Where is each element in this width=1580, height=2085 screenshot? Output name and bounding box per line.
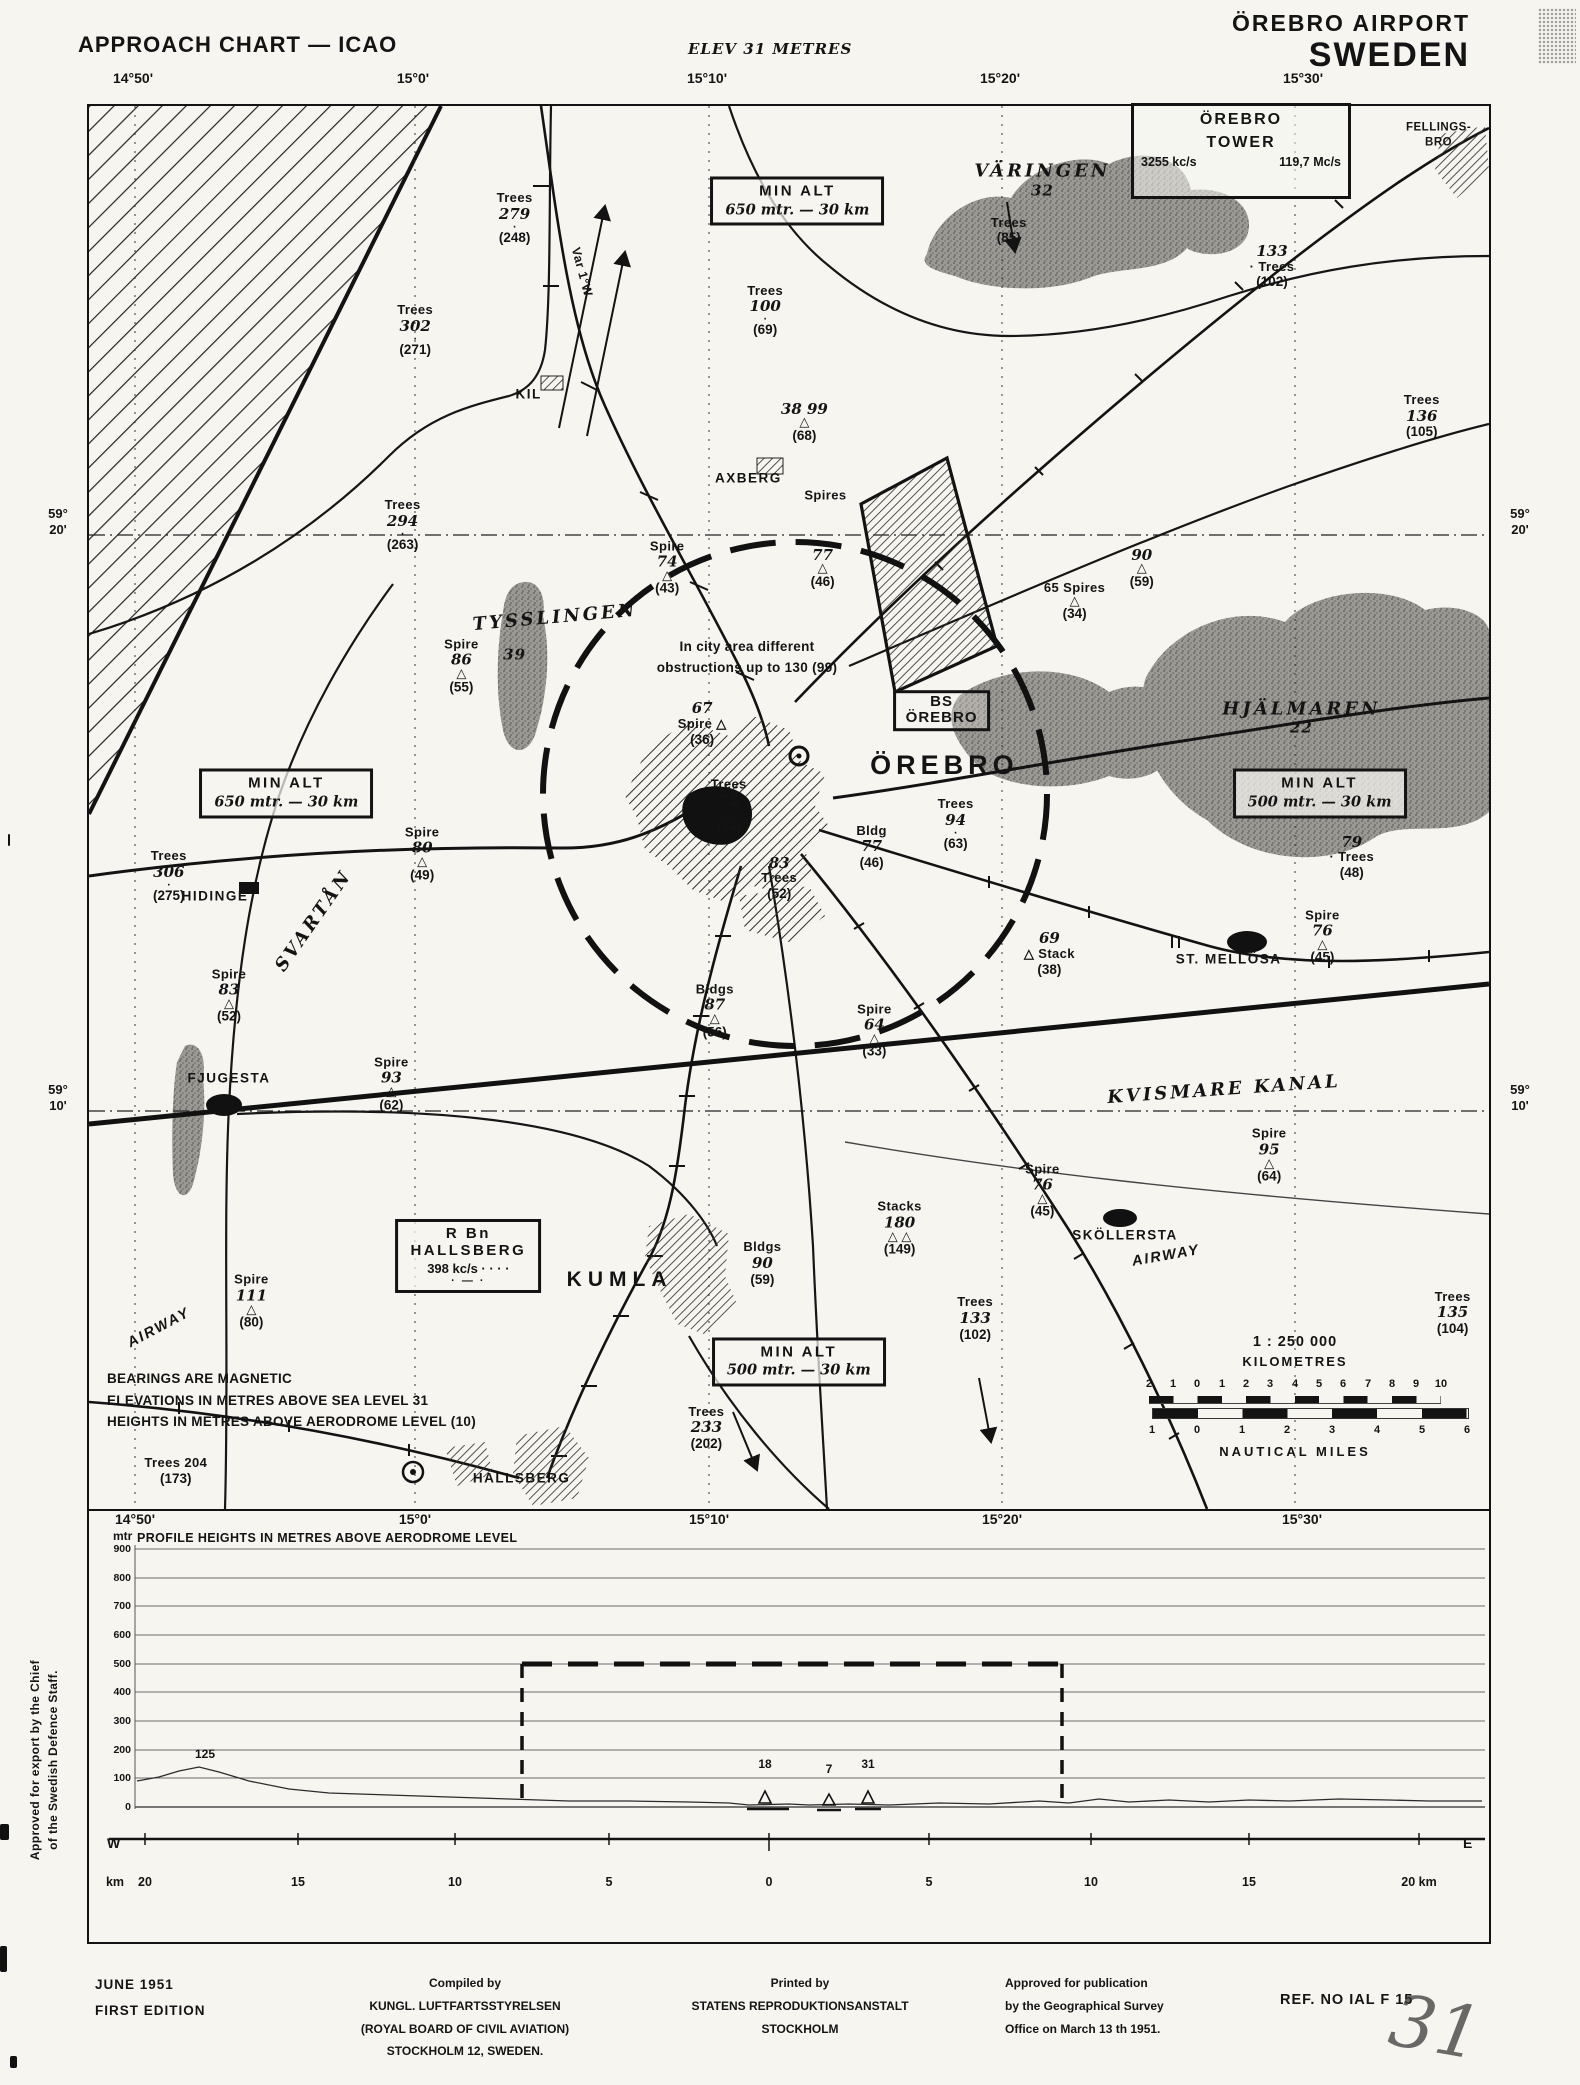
rbn-hallsberg-box-line: · — · bbox=[410, 1277, 526, 1287]
varingen-lake-line: VÄRINGEN bbox=[974, 162, 1110, 182]
nm-tick-label: 3 bbox=[1329, 1424, 1335, 1436]
bs-orebro-box-line: ÖREBRO bbox=[906, 711, 978, 728]
bldg-77-line: (46) bbox=[856, 855, 886, 870]
bldgs-87-line: △ bbox=[696, 1014, 734, 1024]
airway-left: AIRWAY bbox=[125, 1305, 193, 1352]
spire-67-line: Spire △ bbox=[678, 717, 727, 732]
hjalmaren-lake-line: HJÄLMAREN bbox=[1222, 699, 1380, 719]
spire-111-line: (80) bbox=[234, 1315, 269, 1330]
trees-94-line: · bbox=[938, 829, 974, 836]
hidinge-town-line: HIDINGE bbox=[182, 888, 249, 903]
minalt-box-top: MIN ALT650 mtr. — 30 km bbox=[710, 177, 884, 226]
var-declination: Var 1°W bbox=[569, 245, 596, 297]
km-tick-label: 10 bbox=[1435, 1378, 1447, 1390]
tower-name-line1: ÖREBRO bbox=[1134, 111, 1348, 129]
profile-km-axis: km201510505101520 km bbox=[89, 1875, 1489, 1893]
printed-line: STOCKHOLM bbox=[660, 2018, 940, 2041]
spire-76-mellosa-line: (45) bbox=[1305, 950, 1340, 965]
longitude-label: 15°20' bbox=[980, 70, 1020, 86]
latitude-label-se: 59° 10' bbox=[1496, 1082, 1544, 1113]
minalt-box-bottom-line: MIN ALT bbox=[727, 1344, 871, 1361]
trees-204-line: Trees 204 bbox=[144, 1456, 207, 1471]
trees-306-line: · bbox=[151, 881, 187, 888]
trees-302-line: (271) bbox=[397, 342, 433, 357]
kvismare-kanal: KVISMARE KANAL bbox=[1107, 1071, 1342, 1107]
scale-block: 1 : 250 000 KILOMETRES 21012345678910 10… bbox=[1145, 1334, 1481, 1484]
note-elevations: ELEVATIONS IN METRES ABOVE SEA LEVEL 31 bbox=[107, 1390, 476, 1412]
spire-86-line: △ bbox=[444, 669, 479, 679]
trees-94-line: Trees bbox=[938, 798, 974, 813]
spot-height-label: 125 bbox=[195, 1747, 215, 1761]
scan-artifact bbox=[0, 1946, 7, 1972]
spire-83-w-line: (52) bbox=[212, 1009, 247, 1024]
airport-name: ÖREBRO AIRPORT bbox=[1232, 10, 1470, 37]
spire-83-w-line: △ bbox=[212, 998, 247, 1008]
scale-ratio: 1 : 250 000 bbox=[1145, 1334, 1445, 1350]
stacks-180-line: (149) bbox=[877, 1242, 921, 1257]
profile-section: 14°50'15°0'15°10'15°20'15°30' mtr PROFIL… bbox=[89, 1509, 1489, 1942]
fellingsbro-label-line: FELLINGS- bbox=[1406, 121, 1471, 135]
hjalmaren-lake: HJÄLMAREN22 bbox=[1222, 699, 1380, 736]
bldgs-90-line: 90 bbox=[743, 1255, 781, 1272]
lat-deg: 59° bbox=[48, 1082, 68, 1097]
orebro-city-label-line: ÖREBRO bbox=[870, 750, 1019, 780]
latitude-label-nw: 59° 20' bbox=[34, 506, 82, 537]
printed-line: STATENS REPRODUKTIONSANSTALT bbox=[660, 1995, 940, 2018]
axberg-town-line: AXBERG bbox=[715, 470, 782, 485]
kumla-label-line: KUMLA bbox=[567, 1269, 673, 1293]
spire-74-line: Spire bbox=[650, 539, 685, 554]
stack-69: 69△ Stack(38) bbox=[1024, 930, 1075, 976]
hjalmaren-lake-line: 22 bbox=[1222, 719, 1380, 736]
map-area: MIN ALT650 mtr. — 30 kmMIN ALT650 mtr. —… bbox=[89, 106, 1489, 1511]
trees-233: Trees233(202) bbox=[688, 1404, 724, 1450]
footer-compiled-by: Compiled byKUNGL. LUFTFARTSSTYRELSEN(ROY… bbox=[330, 1972, 600, 2063]
spire-111-line: △ bbox=[234, 1304, 269, 1314]
west-marker: W bbox=[107, 1835, 120, 1851]
kil-town-line: KIL bbox=[515, 386, 541, 401]
spire-80-line: (49) bbox=[405, 867, 440, 882]
km-tick-label: 2 bbox=[1243, 1378, 1249, 1390]
spire-67: 67Spire △(36) bbox=[678, 700, 727, 746]
obst-38-99: 38 99△(68) bbox=[781, 401, 828, 443]
trees-279-line: Trees bbox=[497, 191, 533, 206]
spire-83-w-line: Spire bbox=[212, 967, 247, 982]
airway-right-line: AIRWAY bbox=[1130, 1242, 1200, 1270]
obst-90-line: △ bbox=[1130, 563, 1154, 573]
airway-left-line: AIRWAY bbox=[125, 1305, 193, 1352]
km-tick-label: 3 bbox=[1267, 1378, 1273, 1390]
km-tick-label: 7 bbox=[1365, 1378, 1371, 1390]
handwritten-mark: 31 bbox=[1383, 1978, 1488, 2077]
spire-93: Spire93△(62) bbox=[374, 1055, 409, 1112]
trees-136-line: Trees bbox=[1404, 393, 1440, 408]
spire-64-line: (33) bbox=[857, 1044, 892, 1059]
elevation-note: ELEV 31 METRES bbox=[688, 40, 852, 58]
tysslingen-elev: 39 bbox=[503, 646, 526, 663]
longitude-label: 15°30' bbox=[1283, 70, 1323, 86]
varingen-lake-line: 32 bbox=[974, 182, 1110, 199]
trees-135: Trees135(104) bbox=[1435, 1289, 1471, 1335]
trees-135-line: 135 bbox=[1435, 1304, 1471, 1321]
trees-233-line: (202) bbox=[688, 1436, 724, 1451]
tower-freq-kcs: 3255 kc/s bbox=[1141, 155, 1197, 169]
spire-64-line: △ bbox=[857, 1033, 892, 1043]
compiled-line: (ROYAL BOARD OF CIVIL AVIATION) bbox=[330, 2018, 600, 2041]
scan-artifact bbox=[0, 1824, 9, 1840]
fjugesta-town-line: FJUGESTA bbox=[187, 1071, 270, 1086]
tysslingen-lake: TYSSLINGEN bbox=[472, 601, 638, 635]
city-note: In city area differentobstructions up to… bbox=[657, 637, 838, 678]
nm-tick-label: 5 bbox=[1419, 1424, 1425, 1436]
km-tick-label: 1 bbox=[1170, 1378, 1176, 1390]
spires-77-line: (46) bbox=[811, 574, 835, 589]
stack-69-line: 69 bbox=[1024, 930, 1075, 947]
trees-306-line: Trees bbox=[151, 849, 187, 864]
trees-133-ne-line: (102) bbox=[1250, 274, 1295, 289]
stacks-180: Stacks180△ △(149) bbox=[877, 1200, 921, 1257]
obst-90: 90△(59) bbox=[1130, 546, 1154, 588]
scan-artifact bbox=[8, 834, 10, 846]
city-note-line: obstructions up to 130 (99) bbox=[657, 657, 838, 677]
spire-74-line: (43) bbox=[650, 581, 685, 596]
trees-135-line: Trees bbox=[1435, 1289, 1471, 1304]
km-tick-label: 0 bbox=[1194, 1378, 1200, 1390]
tower-freq-mcs: 119,7 Mc/s bbox=[1279, 155, 1341, 169]
trees-294-line: (263) bbox=[385, 537, 421, 552]
stacks-180-line: Stacks bbox=[877, 1200, 921, 1215]
trees-133-s-line: (102) bbox=[957, 1326, 993, 1341]
chart-frame: MIN ALT650 mtr. — 30 kmMIN ALT650 mtr. —… bbox=[87, 104, 1491, 1944]
trees-100: Trees100·(69) bbox=[747, 284, 783, 338]
spire-86-line: Spire bbox=[444, 637, 479, 652]
km-tick-label: 9 bbox=[1413, 1378, 1419, 1390]
trees-79-line: · Trees bbox=[1329, 850, 1374, 865]
kumla-label: KUMLA bbox=[567, 1269, 673, 1293]
trees-100-line: (69) bbox=[747, 323, 783, 338]
approach-chart-page: APPROACH CHART — ICAO ELEV 31 METRES ÖRE… bbox=[0, 0, 1580, 2085]
spire-80-line: △ bbox=[405, 857, 440, 867]
minalt-box-bottom: MIN ALT500 mtr. — 30 km bbox=[712, 1337, 886, 1386]
kil-town: KIL bbox=[515, 386, 541, 401]
spires-65: 65 Spires△(34) bbox=[1044, 581, 1105, 621]
trees-83-line: 83 bbox=[761, 854, 797, 871]
minalt-box-top-line: 650 mtr. — 30 km bbox=[725, 203, 869, 219]
scale-nm-title: NAUTICAL MILES bbox=[1145, 1444, 1445, 1459]
minalt-box-right-line: 500 mtr. — 30 km bbox=[1248, 795, 1392, 811]
skollersta-town: SKÖLLERSTA bbox=[1072, 1228, 1178, 1243]
obst-90-line: (59) bbox=[1130, 574, 1154, 589]
km-tick-label: 2 bbox=[1146, 1378, 1152, 1390]
spires-65-line: △ bbox=[1044, 596, 1105, 606]
map-notes: BEARINGS ARE MAGNETIC ELEVATIONS IN METR… bbox=[107, 1368, 476, 1433]
km-axis-label: 5 bbox=[606, 1875, 613, 1889]
trees-85-line: (85) bbox=[991, 231, 1027, 246]
scale-bar-nm bbox=[1152, 1408, 1469, 1419]
hallsberg-town-line: HALLSBERG bbox=[473, 1471, 571, 1486]
spire-95-line: Spire bbox=[1252, 1127, 1287, 1142]
trees-79: 79· Trees(48) bbox=[1329, 833, 1374, 879]
stack-69-line: (38) bbox=[1024, 962, 1075, 977]
bs-orebro-box: BSÖREBRO bbox=[893, 690, 991, 732]
rbn-hallsberg-box-line: R Bn bbox=[410, 1226, 526, 1243]
nm-tick-label: 0 bbox=[1194, 1424, 1200, 1436]
spire-86: Spire86△(55) bbox=[444, 637, 479, 694]
st-mellosa-town: ST. MELLÖSA bbox=[1176, 951, 1282, 966]
km-tick-label: 5 bbox=[1316, 1378, 1322, 1390]
spot-height-label: 18 bbox=[758, 1757, 771, 1771]
spires-77: 77△(46) bbox=[811, 546, 835, 588]
tower-name-line2: TOWER bbox=[1134, 134, 1348, 152]
minalt-box-right-line: MIN ALT bbox=[1248, 776, 1392, 793]
airway-right: AIRWAY bbox=[1130, 1242, 1200, 1270]
spire-93-line: (62) bbox=[374, 1097, 409, 1112]
export-note-line2: of the Swedish Defence Staff. bbox=[44, 1570, 62, 1950]
trees-100-line: · bbox=[747, 315, 783, 322]
longitude-label: 15°10' bbox=[687, 70, 727, 86]
km-axis-label: km bbox=[106, 1875, 124, 1889]
trees-136-line: (105) bbox=[1404, 424, 1440, 439]
spire-95: Spire95△(64) bbox=[1252, 1127, 1287, 1184]
skollersta-town-line: SKÖLLERSTA bbox=[1072, 1228, 1178, 1243]
compiled-line: Compiled by bbox=[330, 1972, 600, 1995]
city-note-line: In city area different bbox=[657, 637, 838, 657]
trees-94-line: (63) bbox=[938, 836, 974, 851]
spire-76-mellosa-line: △ bbox=[1305, 939, 1340, 949]
hidinge-town: HIDINGE bbox=[182, 888, 249, 903]
var-declination-line: Var 1°W bbox=[569, 245, 596, 297]
trees-83: 83Trees(52) bbox=[761, 854, 797, 900]
page-title: APPROACH CHART — ICAO bbox=[78, 32, 397, 58]
spire-64-line: Spire bbox=[857, 1002, 892, 1017]
minalt-box-right: MIN ALT500 mtr. — 30 km bbox=[1233, 769, 1407, 818]
kvismare-kanal-line: KVISMARE KANAL bbox=[1107, 1071, 1342, 1107]
lat-deg: 59° bbox=[1510, 506, 1530, 521]
longitude-labels-top: 14°50'15°0'15°10'15°20'15°30' bbox=[0, 70, 1580, 90]
nm-tick-label: 4 bbox=[1374, 1424, 1380, 1436]
km-axis-label: 10 bbox=[448, 1875, 462, 1889]
footer-printed-by: Printed bySTATENS REPRODUKTIONSANSTALTST… bbox=[660, 1972, 940, 2040]
tysslingen-lake-line: TYSSLINGEN bbox=[472, 601, 638, 635]
spire-111-line: Spire bbox=[234, 1273, 269, 1288]
trees-302-line: Trees bbox=[397, 304, 433, 319]
scan-artifact bbox=[10, 2056, 17, 2068]
spire-74-line: △ bbox=[650, 571, 685, 581]
spire-83-w: Spire83△(52) bbox=[212, 967, 247, 1024]
trees-79-line: (48) bbox=[1329, 865, 1374, 880]
minalt-box-left: MIN ALT650 mtr. — 30 km bbox=[199, 769, 373, 818]
export-note-line1: Approved for export by the Chief bbox=[26, 1570, 44, 1950]
spire-74: Spire74△(43) bbox=[650, 539, 685, 596]
approval-line: by the Geographical Survey bbox=[1005, 1995, 1275, 2018]
bs-orebro-box-line: BS bbox=[906, 694, 978, 711]
trees-100-line: Trees bbox=[747, 284, 783, 299]
lat-deg: 59° bbox=[48, 506, 68, 521]
trees-204-line: (173) bbox=[144, 1471, 207, 1486]
trees-133-ne-line: · Trees bbox=[1250, 260, 1295, 275]
spire-95-line: △ bbox=[1252, 1158, 1287, 1168]
spire-76-skollersta-line: Spire bbox=[1025, 1162, 1060, 1177]
spire-76-skollersta-line: (45) bbox=[1025, 1204, 1060, 1219]
obst-38-99-line: △ bbox=[781, 417, 828, 427]
trees-302: Trees302·(271) bbox=[397, 304, 433, 358]
bldgs-90: Bldgs90(59) bbox=[743, 1240, 781, 1286]
trees-302-line: · bbox=[397, 335, 433, 342]
trees-233-line: Trees bbox=[688, 1404, 724, 1419]
rbn-hallsberg-box: R BnHALLSBERG398 kc/s · · · ·· — · bbox=[395, 1219, 541, 1293]
trees-306-line: (275) bbox=[151, 888, 187, 903]
spire-76-skollersta-line: △ bbox=[1025, 1193, 1060, 1203]
spires-65-line: (34) bbox=[1044, 606, 1105, 621]
nm-tick-label: 1 bbox=[1149, 1424, 1155, 1436]
lat-min: 10' bbox=[1511, 1098, 1529, 1113]
trees-279-line: · bbox=[497, 223, 533, 230]
nm-tick-label: 1 bbox=[1239, 1424, 1245, 1436]
bldgs-90-line: (59) bbox=[743, 1272, 781, 1287]
orebro-city-label: ÖREBRO bbox=[870, 750, 1019, 780]
trees-75: Trees75△(44) bbox=[711, 778, 747, 835]
compiled-line: KUNGL. LUFTFARTSSTYRELSEN bbox=[330, 1995, 600, 2018]
trees-85-line: Trees bbox=[991, 216, 1027, 231]
km-tick-label: 6 bbox=[1340, 1378, 1346, 1390]
trees-75-line: (44) bbox=[711, 819, 747, 834]
scale-nm-ticks: 10123456 bbox=[1145, 1424, 1481, 1438]
nm-tick-label: 2 bbox=[1284, 1424, 1290, 1436]
bldgs-90-line: Bldgs bbox=[743, 1240, 781, 1255]
spire-93-line: △ bbox=[374, 1087, 409, 1097]
axberg-town: AXBERG bbox=[715, 470, 782, 485]
trees-136-line: 136 bbox=[1404, 407, 1440, 424]
km-axis-label: 15 bbox=[1242, 1875, 1256, 1889]
printed-line: Printed by bbox=[660, 1972, 940, 1995]
trees-294-line: Trees bbox=[385, 499, 421, 514]
spire-64: Spire64△(33) bbox=[857, 1002, 892, 1059]
minalt-box-top-line: MIN ALT bbox=[725, 184, 869, 201]
spires-axberg-line: Spires bbox=[804, 489, 846, 504]
scale-bar-km bbox=[1149, 1396, 1441, 1404]
spire-95-line: (64) bbox=[1252, 1169, 1287, 1184]
lat-min: 10' bbox=[49, 1098, 67, 1113]
trees-94: Trees94·(63) bbox=[938, 798, 974, 852]
bldg-77: Bldg77(46) bbox=[856, 824, 886, 870]
approval-line: Approved for publication bbox=[1005, 1972, 1275, 1995]
minalt-box-left-line: 650 mtr. — 30 km bbox=[214, 795, 358, 811]
km-axis-label: 20 bbox=[138, 1875, 152, 1889]
tower-frequency-box: ÖREBRO TOWER 3255 kc/s 119,7 Mc/s bbox=[1131, 103, 1351, 199]
spire-80-line: Spire bbox=[405, 825, 440, 840]
st-mellosa-town-line: ST. MELLÖSA bbox=[1176, 951, 1282, 966]
trees-133-ne: 133· Trees(102) bbox=[1250, 243, 1295, 289]
nm-tick-label: 6 bbox=[1464, 1424, 1470, 1436]
minalt-box-bottom-line: 500 mtr. — 30 km bbox=[727, 1363, 871, 1379]
longitude-label: 14°50' bbox=[113, 70, 153, 86]
longitude-label: 15°0' bbox=[397, 70, 429, 86]
publication-date: JUNE 1951 bbox=[95, 1972, 206, 1998]
bldgs-87-line: Bldgs bbox=[696, 983, 734, 998]
km-axis-label: 5 bbox=[926, 1875, 933, 1889]
spire-67-line: 67 bbox=[678, 700, 727, 717]
varingen-lake: VÄRINGEN32 bbox=[974, 162, 1110, 199]
export-approval-note: Approved for export by the Chief of the … bbox=[26, 1570, 62, 1950]
latitude-label-sw: 59° 10' bbox=[34, 1082, 82, 1113]
spire-76-mellosa: Spire76△(45) bbox=[1305, 908, 1340, 965]
approval-line: Office on March 13 th 1951. bbox=[1005, 2018, 1275, 2041]
trees-83-line: (52) bbox=[761, 886, 797, 901]
stack-69-line: △ Stack bbox=[1024, 947, 1075, 962]
trees-306: Trees306·(275) bbox=[151, 849, 187, 903]
minalt-box-left-line: MIN ALT bbox=[214, 776, 358, 793]
spire-80: Spire80△(49) bbox=[405, 825, 440, 882]
spire-76-skollersta: Spire76△(45) bbox=[1025, 1162, 1060, 1219]
trees-136: Trees136(105) bbox=[1404, 393, 1440, 439]
scale-km-title: KILOMETRES bbox=[1145, 1354, 1445, 1369]
spot-height-label: 7 bbox=[826, 1762, 833, 1776]
km-axis-label: 15 bbox=[291, 1875, 305, 1889]
km-tick-label: 4 bbox=[1292, 1378, 1298, 1390]
spire-93-line: Spire bbox=[374, 1055, 409, 1070]
trees-133-s: Trees133(102) bbox=[957, 1295, 993, 1341]
trees-233-line: 233 bbox=[688, 1419, 724, 1436]
map-feature-labels: MIN ALT650 mtr. — 30 kmMIN ALT650 mtr. —… bbox=[89, 106, 1489, 1509]
spire-86-line: (55) bbox=[444, 679, 479, 694]
spot-height-label: 31 bbox=[861, 1757, 874, 1771]
svartan-river-line: SVARTÅN bbox=[272, 867, 357, 976]
trees-133-s-line: Trees bbox=[957, 1295, 993, 1310]
spire-76-mellosa-line: Spire bbox=[1305, 908, 1340, 923]
spire-67-line: (36) bbox=[678, 731, 727, 746]
spires-77-line: △ bbox=[811, 563, 835, 573]
stacks-180-line: △ △ bbox=[877, 1231, 921, 1241]
trees-133-ne-line: 133 bbox=[1250, 243, 1295, 260]
trees-75-line: Trees bbox=[711, 778, 747, 793]
compiled-line: STOCKHOLM 12, SWEDEN. bbox=[330, 2040, 600, 2063]
trees-294-line: · bbox=[385, 530, 421, 537]
rbn-hallsberg-box-line: HALLSBERG bbox=[410, 1243, 526, 1260]
trees-83-line: Trees bbox=[761, 871, 797, 886]
scan-smudge bbox=[1538, 8, 1576, 64]
tysslingen-elev-line: 39 bbox=[503, 646, 526, 663]
bldgs-87: Bldgs87△(56) bbox=[696, 983, 734, 1040]
fellingsbro-label-line: BRO bbox=[1406, 135, 1471, 149]
trees-294: Trees294·(263) bbox=[385, 499, 421, 553]
footer-approval: Approved for publicationby the Geographi… bbox=[1005, 1972, 1275, 2040]
trees-204: Trees 204(173) bbox=[144, 1456, 207, 1486]
lat-min: 20' bbox=[49, 522, 67, 537]
scale-km-ticks: 21012345678910 bbox=[1145, 1378, 1481, 1392]
spire-111: Spire111△(80) bbox=[234, 1273, 269, 1330]
lat-min: 20' bbox=[1511, 522, 1529, 537]
east-marker: E bbox=[1463, 1835, 1472, 1851]
km-axis-label: 20 km bbox=[1401, 1875, 1436, 1889]
trees-279-line: (248) bbox=[497, 230, 533, 245]
bldg-77-line: 77 bbox=[856, 838, 886, 855]
hallsberg-town: HALLSBERG bbox=[473, 1471, 571, 1486]
km-axis-label: 0 bbox=[766, 1875, 773, 1889]
km-tick-label: 1 bbox=[1219, 1378, 1225, 1390]
km-axis-label: 10 bbox=[1084, 1875, 1098, 1889]
svartan-river: SVARTÅN bbox=[272, 867, 357, 976]
km-tick-label: 8 bbox=[1389, 1378, 1395, 1390]
trees-79-line: 79 bbox=[1329, 833, 1374, 850]
bldg-77-line: Bldg bbox=[856, 824, 886, 839]
bldgs-87-line: (56) bbox=[696, 1024, 734, 1039]
latitude-label-ne: 59° 20' bbox=[1496, 506, 1544, 537]
note-heights: HEIGHTS IN METRES ABOVE AERODROME LEVEL … bbox=[107, 1411, 476, 1433]
trees-75-line: △ bbox=[711, 809, 747, 819]
lat-deg: 59° bbox=[1510, 1082, 1530, 1097]
fjugesta-town: FJUGESTA bbox=[187, 1071, 270, 1086]
footer-date-edition: JUNE 1951 FIRST EDITION bbox=[95, 1972, 206, 2023]
